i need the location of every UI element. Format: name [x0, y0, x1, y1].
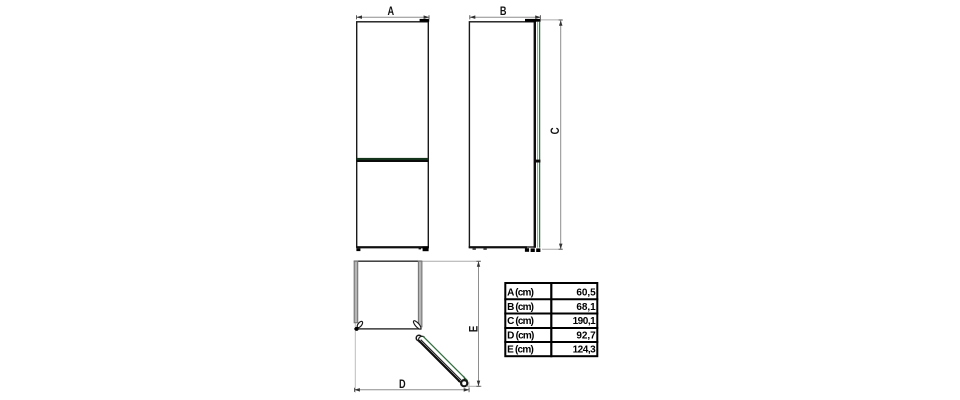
svg-text:B: B — [500, 5, 507, 19]
svg-text:68,1: 68,1 — [576, 302, 596, 313]
svg-text:92,7: 92,7 — [576, 330, 596, 341]
svg-text:E: E — [468, 326, 481, 332]
svg-text:A: A — [387, 5, 394, 19]
svg-text:E (cm): E (cm) — [507, 345, 534, 356]
svg-text:C (cm): C (cm) — [507, 316, 534, 327]
svg-text:C: C — [549, 127, 562, 134]
svg-text:124,3: 124,3 — [573, 345, 597, 356]
svg-text:A (cm): A (cm) — [507, 288, 534, 299]
svg-text:D (cm): D (cm) — [507, 330, 534, 341]
svg-text:B (cm): B (cm) — [507, 302, 534, 313]
svg-text:190,1: 190,1 — [573, 316, 597, 327]
svg-text:60,5: 60,5 — [576, 288, 596, 299]
